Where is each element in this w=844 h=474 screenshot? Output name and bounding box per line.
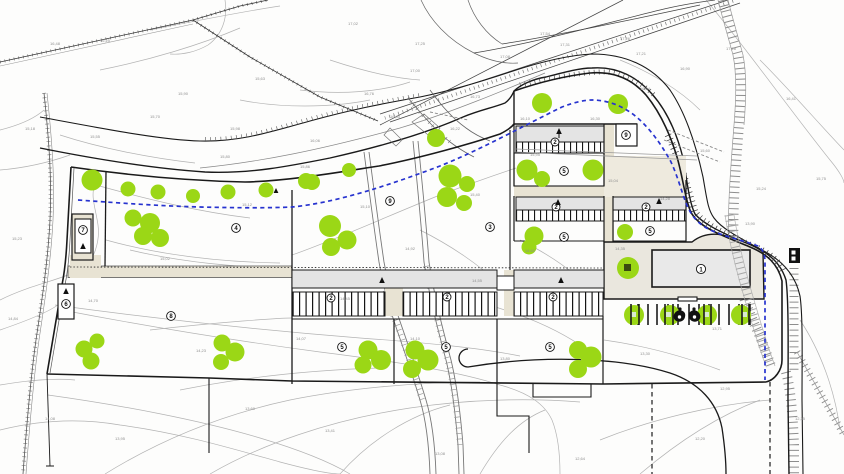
svg-text:13,60: 13,60 [245, 406, 256, 411]
svg-text:14,70: 14,70 [88, 298, 99, 303]
svg-text:16,90: 16,90 [680, 66, 691, 71]
svg-text:16,48: 16,48 [50, 41, 61, 46]
svg-text:17,25: 17,25 [415, 41, 426, 46]
svg-text:16,06: 16,06 [310, 138, 321, 143]
svg-text:16,40: 16,40 [390, 114, 401, 119]
svg-text:15,80: 15,80 [220, 154, 231, 159]
svg-text:15,12: 15,12 [242, 202, 253, 207]
svg-text:16,30: 16,30 [590, 116, 601, 121]
svg-text:17,00: 17,00 [410, 68, 421, 73]
svg-text:12,64: 12,64 [575, 456, 586, 461]
svg-text:13,80: 13,80 [500, 356, 511, 361]
svg-text:17,54: 17,54 [540, 31, 551, 36]
svg-text:16,41: 16,41 [786, 96, 797, 101]
svg-text:13,71: 13,71 [712, 326, 723, 331]
svg-text:14,45: 14,45 [340, 296, 351, 301]
svg-text:17,26: 17,26 [620, 36, 631, 41]
svg-text:15,10: 15,10 [360, 204, 371, 209]
svg-text:13,90: 13,90 [745, 221, 756, 226]
svg-text:15,75: 15,75 [816, 176, 827, 181]
svg-text:16,25: 16,25 [100, 38, 111, 43]
svg-text:16,76: 16,76 [364, 91, 375, 96]
svg-text:14,08: 14,08 [45, 416, 56, 421]
svg-text:12,20: 12,20 [695, 436, 706, 441]
svg-text:17,28: 17,28 [726, 46, 737, 51]
svg-text:15,86: 15,86 [300, 164, 311, 169]
svg-text:13,95: 13,95 [115, 436, 126, 441]
svg-text:16,73: 16,73 [470, 94, 481, 99]
svg-text:14,07: 14,07 [296, 336, 307, 341]
svg-text:15,90: 15,90 [178, 91, 189, 96]
svg-text:14,35: 14,35 [615, 246, 626, 251]
svg-text:15,02: 15,02 [160, 256, 171, 261]
svg-text:16,64: 16,64 [640, 86, 651, 91]
svg-text:15,18: 15,18 [25, 126, 36, 131]
svg-text:12,95: 12,95 [720, 386, 731, 391]
svg-text:17,02: 17,02 [348, 21, 359, 26]
svg-text:15,98: 15,98 [230, 126, 241, 131]
svg-text:15,55: 15,55 [90, 134, 101, 139]
svg-text:15,70: 15,70 [150, 114, 161, 119]
svg-text:16,10: 16,10 [520, 116, 531, 121]
svg-text:14,92: 14,92 [405, 246, 416, 251]
svg-text:17,21: 17,21 [636, 51, 647, 56]
svg-text:15,24: 15,24 [756, 186, 767, 191]
svg-text:15,60: 15,60 [700, 148, 711, 153]
svg-text:14,84: 14,84 [8, 316, 19, 321]
svg-text:17,08: 17,08 [500, 54, 511, 59]
svg-text:15,95: 15,95 [530, 152, 541, 157]
svg-text:12,35: 12,35 [795, 416, 806, 421]
svg-text:15,40: 15,40 [470, 192, 481, 197]
svg-text:14,60: 14,60 [525, 248, 536, 253]
svg-text:13,08: 13,08 [435, 451, 446, 456]
svg-text:13,41: 13,41 [325, 428, 336, 433]
svg-text:15,04: 15,04 [608, 178, 619, 183]
svg-text:15,63: 15,63 [255, 76, 266, 81]
svg-text:14,10: 14,10 [410, 336, 421, 341]
svg-text:15,23: 15,23 [12, 236, 23, 241]
svg-text:14,55: 14,55 [472, 278, 483, 283]
svg-text:14,23: 14,23 [196, 348, 207, 353]
svg-text:16,22: 16,22 [450, 126, 461, 131]
svg-text:17,31: 17,31 [560, 42, 571, 47]
svg-text:14,28: 14,28 [660, 196, 671, 201]
svg-text:13,30: 13,30 [640, 351, 651, 356]
